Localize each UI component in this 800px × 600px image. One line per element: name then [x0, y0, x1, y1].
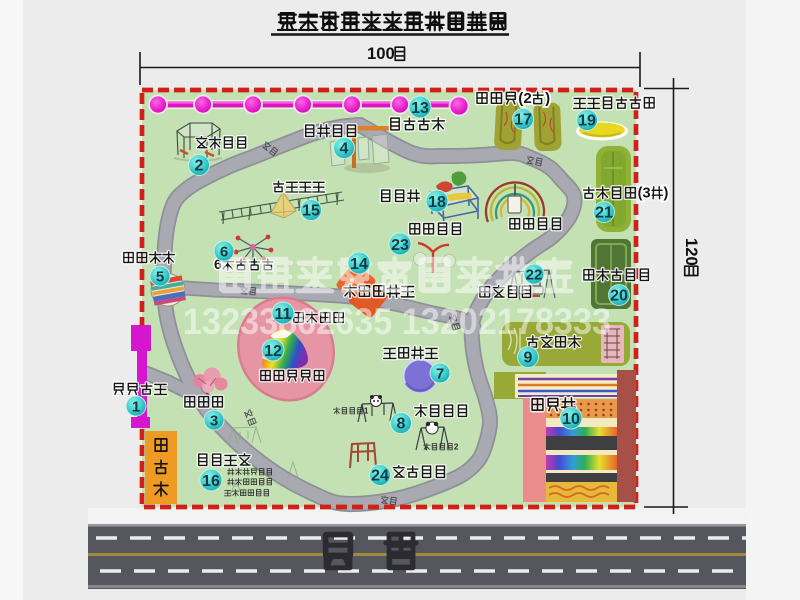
svg-text:3: 3: [210, 412, 218, 429]
svg-text:120: 120: [682, 238, 701, 266]
svg-text:1: 1: [132, 398, 140, 415]
svg-text:9: 9: [524, 350, 533, 367]
svg-text:19: 19: [578, 113, 596, 130]
svg-text:7: 7: [436, 365, 444, 382]
svg-text:10: 10: [562, 411, 580, 428]
svg-text:2: 2: [195, 158, 204, 175]
svg-text:21: 21: [595, 205, 613, 222]
svg-text:15: 15: [302, 203, 320, 220]
svg-text:): ): [664, 186, 669, 202]
svg-text:(3: (3: [638, 186, 651, 202]
svg-text:16: 16: [202, 473, 220, 490]
svg-text:1: 1: [364, 406, 369, 415]
svg-text:23: 23: [391, 237, 409, 254]
svg-text:20: 20: [610, 288, 628, 305]
svg-text:100: 100: [367, 44, 395, 63]
svg-text:18: 18: [428, 194, 446, 211]
svg-text:4: 4: [340, 141, 349, 158]
svg-text:): ): [545, 90, 550, 107]
svg-text:8: 8: [397, 416, 406, 433]
svg-text:13: 13: [411, 100, 429, 117]
svg-text:17: 17: [514, 112, 532, 129]
svg-text:2: 2: [454, 442, 459, 451]
svg-text:11: 11: [275, 306, 292, 323]
svg-text:24: 24: [371, 468, 389, 485]
svg-text:22: 22: [526, 266, 543, 283]
svg-text:14: 14: [350, 256, 368, 273]
svg-text:(2: (2: [518, 90, 531, 107]
svg-text:12: 12: [264, 343, 282, 360]
svg-text:5: 5: [156, 268, 164, 285]
svg-text:13233862635 13202178333: 13233862635 13202178333: [183, 301, 611, 342]
svg-text:6: 6: [220, 243, 228, 260]
